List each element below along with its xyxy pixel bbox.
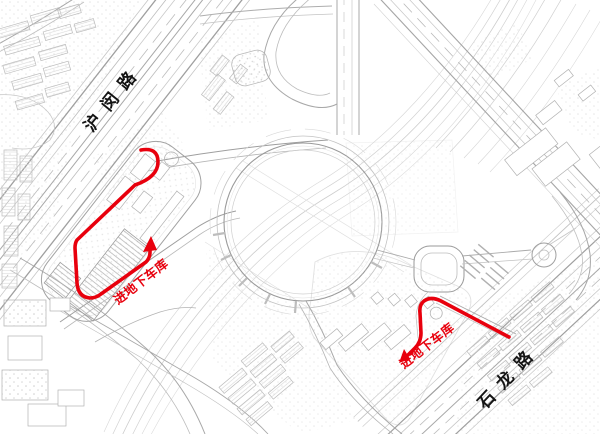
site-plan-map: 沪闵路 石龙路 进地下车库 进地下车库: [0, 0, 600, 434]
